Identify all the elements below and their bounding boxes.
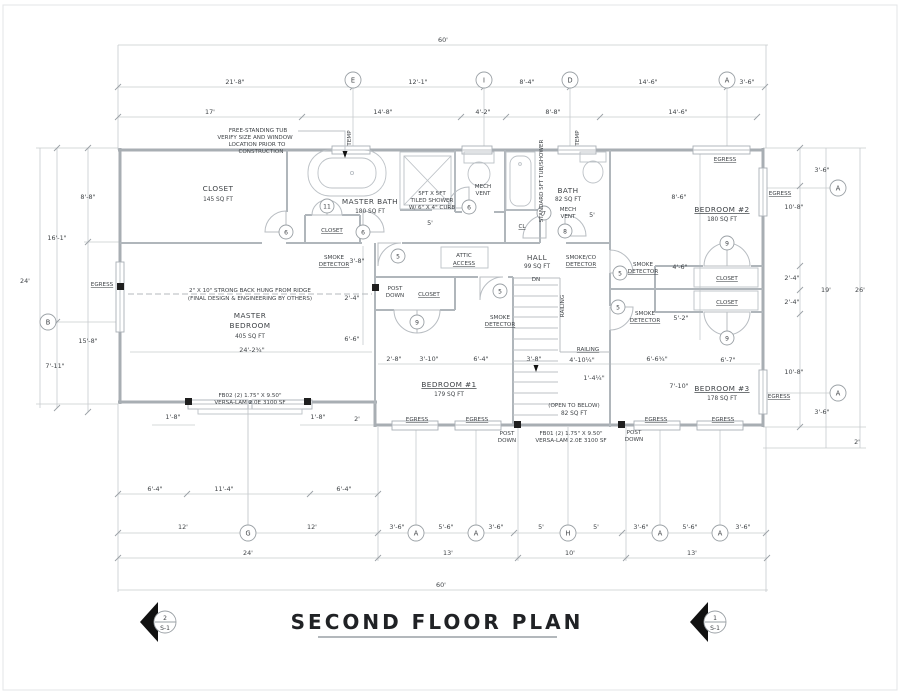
room-bedroom1-area: 179 SQ FT xyxy=(434,392,464,398)
dim: 3'-8" xyxy=(349,257,364,265)
room-hall-area: 99 SQ FT xyxy=(524,264,551,270)
grid-bubble-a5: A xyxy=(474,530,479,538)
dim: 15'-8" xyxy=(78,337,97,345)
dim: 4'-2" xyxy=(475,108,490,116)
room-bedroom3: BEDROOM #3 xyxy=(694,384,749,393)
post-down-1a: POST xyxy=(388,286,403,292)
closet-label-1: CLOSET xyxy=(321,228,343,234)
grid-bubble-a3: A xyxy=(836,390,841,398)
grid-bubble-b: B xyxy=(46,319,51,327)
room-master-bedroom-area: 405 SQ FT xyxy=(235,334,265,340)
dim: 8'-4" xyxy=(519,78,534,86)
dim: 3'-8" xyxy=(526,355,541,363)
door-tag-6a: 6 xyxy=(284,229,288,236)
grid-bubble-a4: A xyxy=(414,530,419,538)
room-master-bedroom-1: MASTER xyxy=(234,311,266,320)
dim: 5' xyxy=(589,211,595,219)
dim: 1'-4¼" xyxy=(583,374,604,382)
tub-note-2: VERIFY SIZE AND WINDOW xyxy=(217,135,293,141)
attic-access-a: ATTIC xyxy=(456,253,472,259)
dim: 5'-6" xyxy=(682,523,697,531)
dim: 12' xyxy=(307,523,317,531)
egress-label-b3-a: EGRESS xyxy=(645,417,668,423)
drawing-title: SECOND FLOOR PLAN xyxy=(291,610,584,634)
room-open-below: (OPEN TO BELOW) xyxy=(548,403,599,409)
dim: 14'-6" xyxy=(668,108,687,116)
dim: 3'-10" xyxy=(419,355,438,363)
beam-fb02-2: VERSA-LAM 2.0E 3100 SF xyxy=(214,400,285,406)
dim: 8'-6" xyxy=(671,193,686,201)
temp-glass-label-2: TEMP xyxy=(575,130,581,147)
dim: 12' xyxy=(178,523,188,531)
room-master-bath-area: 180 SQ FT xyxy=(355,209,385,215)
smoke-det-3a: SMOKE xyxy=(633,262,653,268)
dim: 3'-6" xyxy=(739,78,754,86)
dim: 6'-4" xyxy=(147,485,162,493)
egress-label-left: EGRESS xyxy=(91,282,114,288)
temp-glass-label-1: TEMP xyxy=(347,130,353,147)
dim: 2'-4" xyxy=(344,294,359,302)
door-tag-9b: 9 xyxy=(725,240,729,247)
room-bedroom3-area: 178 SQ FT xyxy=(707,396,737,402)
railing-label-horiz: RAILING xyxy=(577,347,599,353)
smoke-co-det-b: DETECTOR xyxy=(566,262,597,268)
dim: 3'-6" xyxy=(389,523,404,531)
door-tag-5a: 5 xyxy=(396,253,400,260)
door-tag-5b: 5 xyxy=(498,288,502,295)
dim: 10' xyxy=(565,549,575,557)
dim: 2'-4" xyxy=(784,274,799,282)
door-tag-9c: 9 xyxy=(725,335,729,342)
section-marker-right: 1 S-1 xyxy=(690,602,726,642)
dim: 8'-8" xyxy=(545,108,560,116)
dim: 2'-4" xyxy=(784,298,799,306)
egress-label-b3-b: EGRESS xyxy=(712,417,735,423)
shower-note-1: 5FT X 5FT xyxy=(418,191,446,197)
grid-bubble-a6: A xyxy=(658,530,663,538)
dim: 6'-6" xyxy=(344,335,359,343)
dim: 7'-10" xyxy=(669,382,688,390)
room-open-below-area: 82 SQ FT xyxy=(561,411,588,417)
stair-dn-label: DN xyxy=(532,277,541,283)
grid-bubble-i: I xyxy=(483,77,485,85)
dimensions-interior: 3'-8" 2'-4" 6'-6" 24'-2¾" 2'-8" 3'-10" 6… xyxy=(239,193,735,390)
dim: 24' xyxy=(243,549,253,557)
egress-label-b3-right: EGRESS xyxy=(768,394,791,400)
smoke-det-2b: DETECTOR xyxy=(485,322,516,328)
post-down-2b: DOWN xyxy=(498,438,516,444)
closet-label-3: CLOSET xyxy=(716,276,738,282)
dim: 1'-8" xyxy=(165,413,180,421)
room-bedroom2: BEDROOM #2 xyxy=(694,205,749,214)
dim: 1'-8" xyxy=(310,413,325,421)
dim: 4'-10¼" xyxy=(569,356,594,364)
dim: 12'-1" xyxy=(408,78,427,86)
smoke-det-2a: SMOKE xyxy=(490,315,510,321)
shower-note-2: TILED SHOWER xyxy=(410,198,454,204)
mech-vent-2a: MECH xyxy=(560,207,576,213)
post-down-1b: DOWN xyxy=(386,293,404,299)
grid-bubble-a7: A xyxy=(718,530,723,538)
dim: 5' xyxy=(427,219,433,227)
egress-label-b1-b: EGRESS xyxy=(466,417,489,423)
beam-fb01-2: VERSA-LAM 2.0E 3100 SF xyxy=(535,438,606,444)
dimensions-right: 3'-6" 10'-8" 2'-4" 2'-4" 10'-8" 3'-6" 19… xyxy=(784,166,865,446)
post-down-3a: POST xyxy=(627,430,642,436)
floor-plan-sheet: E I D A B A A G A A H A A 11 6 6 6 7 8 5… xyxy=(0,0,900,695)
dim: 11'-4" xyxy=(214,485,233,493)
closet-label-4: CLOSET xyxy=(716,300,738,306)
section-sheet: S-1 xyxy=(160,625,170,632)
section-number: 1 xyxy=(713,615,717,622)
closet-label-2: CLOSET xyxy=(418,292,440,298)
dim-overall-left: 24' xyxy=(20,277,30,285)
dim: 8'-8" xyxy=(80,193,95,201)
egress-label-b1-a: EGRESS xyxy=(406,417,429,423)
room-master-bedroom-2: BEDROOM xyxy=(230,321,271,330)
door-tag-6c: 6 xyxy=(467,204,471,211)
dim: 14'-8" xyxy=(373,108,392,116)
section-number: 2 xyxy=(163,615,167,622)
dim: 2' xyxy=(854,438,860,446)
shower-note-3: W/ 6" X 4" CURB xyxy=(409,205,456,211)
dim: 5' xyxy=(593,523,599,531)
dim: 4'-6" xyxy=(672,263,687,271)
dim: 10'-8" xyxy=(784,368,803,376)
dim: 13' xyxy=(687,549,697,557)
dim: 3'-6" xyxy=(814,166,829,174)
room-hall: HALL xyxy=(527,253,548,262)
mech-vent-1a: MECH xyxy=(475,184,491,190)
egress-label-b2-right: EGRESS xyxy=(769,191,792,197)
stair-width-arrow xyxy=(534,365,539,372)
grid-bubble-d: D xyxy=(567,77,572,85)
strongback-note-2: (FINAL DESIGN & ENGINEERING BY OTHERS) xyxy=(188,296,312,302)
dim: 19' xyxy=(821,286,831,294)
dim: 14'-6" xyxy=(638,78,657,86)
smoke-det-1a: SMOKE xyxy=(324,255,344,261)
mech-vent-1b: VENT xyxy=(476,191,492,197)
egress-label-b2-top: EGRESS xyxy=(714,157,737,163)
mech-vent-2b: VENT xyxy=(561,214,577,220)
dim: 10'-8" xyxy=(784,203,803,211)
section-sheet: S-1 xyxy=(710,625,720,632)
smoke-det-3b: DETECTOR xyxy=(628,269,659,275)
grid-bubble-h: H xyxy=(566,530,571,538)
dim: 6'-4" xyxy=(473,355,488,363)
grid-bubble-e: E xyxy=(351,77,355,85)
freestanding-tub xyxy=(308,150,386,196)
dim-overall-bottom: 60' xyxy=(436,581,446,589)
room-master-closet: CLOSET xyxy=(203,184,234,193)
dimensions-left: 24' 16'-1" 7'-11" 8'-8" 15'-8" xyxy=(20,193,98,370)
dim: 16'-1" xyxy=(47,234,66,242)
smoke-co-det-a: SMOKE/CO xyxy=(566,255,597,261)
dim: 21'-8" xyxy=(225,78,244,86)
dim: 2' xyxy=(354,415,360,423)
grid-bubble-a2: A xyxy=(836,185,841,193)
tub-note-3: LOCATION PRIOR TO xyxy=(229,142,286,148)
room-master-closet-area: 145 SQ FT xyxy=(203,197,233,203)
smoke-det-4a: SMOKE xyxy=(635,311,655,317)
dim: 3'-6" xyxy=(633,523,648,531)
dim: 5' xyxy=(538,523,544,531)
room-bath-area: 82 SQ FT xyxy=(555,197,582,203)
dim: 2'-8" xyxy=(386,355,401,363)
door-tag-5d: 5 xyxy=(616,304,620,311)
door-tag-9a: 9 xyxy=(415,319,419,326)
post-down-2a: POST xyxy=(500,431,515,437)
room-master-bath: MASTER BATH xyxy=(342,197,398,206)
door-tag-8: 8 xyxy=(563,228,567,235)
room-bedroom1: BEDROOM #1 xyxy=(421,380,476,389)
post-down-3b: DOWN xyxy=(625,437,643,443)
dim: 13' xyxy=(443,549,453,557)
room-bedroom2-area: 180 SQ FT xyxy=(707,217,737,223)
door-tag-11: 11 xyxy=(323,203,331,210)
tub-note-4: CONSTRUCTION xyxy=(238,149,283,155)
grid-bubble-g: G xyxy=(245,530,250,538)
closet-label-cl: CL xyxy=(518,224,526,230)
railing-label-vert: RAILING xyxy=(560,295,566,317)
section-marker-left: 2 S-1 xyxy=(140,602,176,642)
strongback-note-1: 2" X 10" STRONG BACK HUNG FROM RIDGE xyxy=(189,288,311,294)
dim: 6'-4" xyxy=(336,485,351,493)
dimension-lines xyxy=(36,45,866,592)
grid-bubbles: E I D A B A A G A A H A A xyxy=(40,72,846,541)
dim-overall-top: 60' xyxy=(438,36,448,44)
beam-fb02-1: FB02 (2) 1.75" X 9.50" xyxy=(218,393,282,399)
door-tag-5c: 5 xyxy=(618,270,622,277)
tub-note-1: FREE-STANDING TUB xyxy=(229,128,288,134)
dim: 7'-11" xyxy=(45,362,64,370)
dim: 6'-6¾" xyxy=(646,355,667,363)
dim: 6'-7" xyxy=(720,356,735,364)
grid-bubble-a1: A xyxy=(725,77,730,85)
dim: 3'-6" xyxy=(488,523,503,531)
room-bath: BATH xyxy=(558,186,579,195)
dim: 5'-6" xyxy=(438,523,453,531)
dim: 17' xyxy=(205,108,215,116)
dim: 3'-6" xyxy=(814,408,829,416)
smoke-det-4b: DETECTOR xyxy=(630,318,661,324)
tub-shower-label: STANDARD 5FT TUB/SHOWER xyxy=(539,140,545,223)
title-block: SECOND FLOOR PLAN xyxy=(291,610,584,637)
dim: 24'-2¾" xyxy=(239,346,264,354)
dim-overall-right: 26' xyxy=(855,286,865,294)
door-tag-6b: 6 xyxy=(361,229,365,236)
smoke-det-1b: DETECTOR xyxy=(319,262,350,268)
beam-fb01-1: FB01 (2) 1.75" X 9.50" xyxy=(539,431,603,437)
dim: 5'-2" xyxy=(673,314,688,322)
dim: 3'-6" xyxy=(735,523,750,531)
attic-access-b: ACCESS xyxy=(453,261,476,267)
